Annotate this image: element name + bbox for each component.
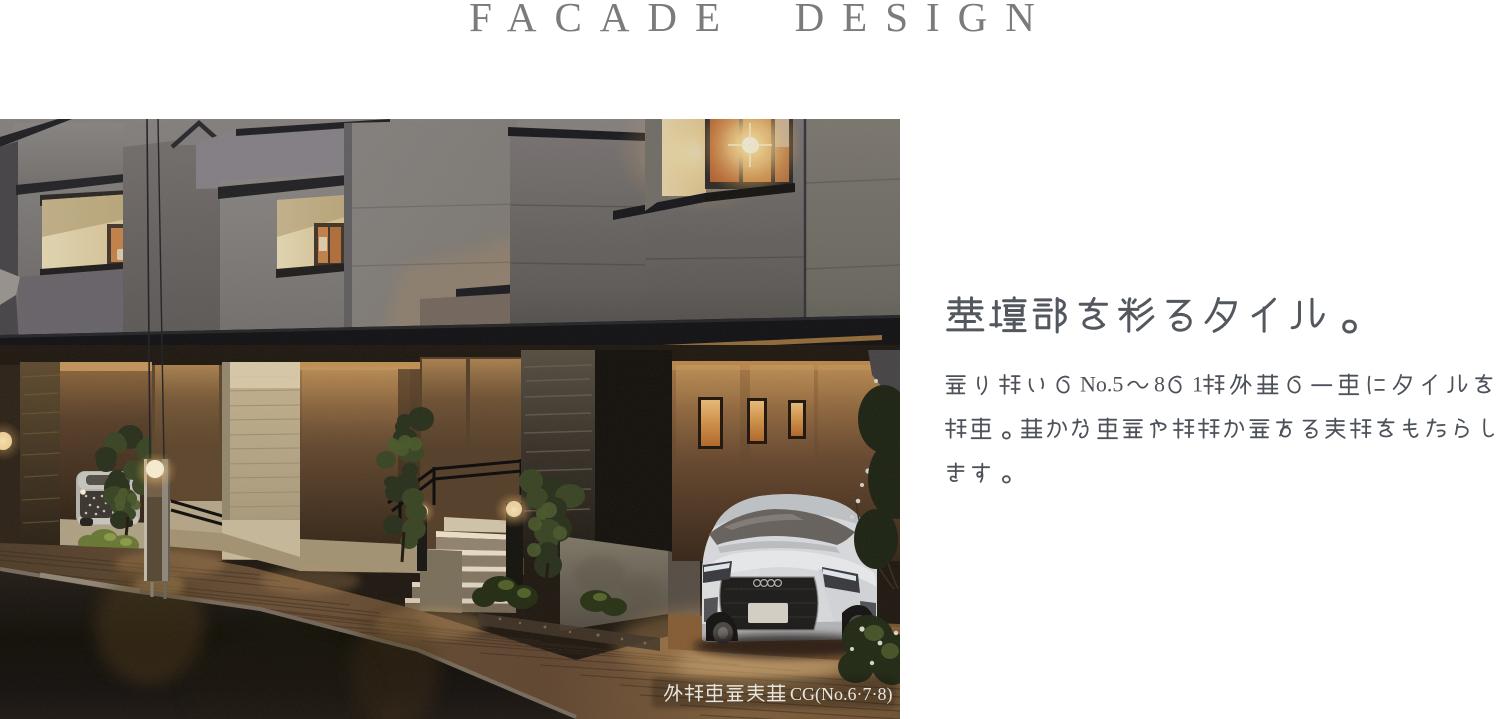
svg-text:No.5: No.5 [1080, 373, 1123, 397]
svg-text:8: 8 [1154, 373, 1165, 397]
svg-text:1: 1 [1192, 373, 1203, 397]
